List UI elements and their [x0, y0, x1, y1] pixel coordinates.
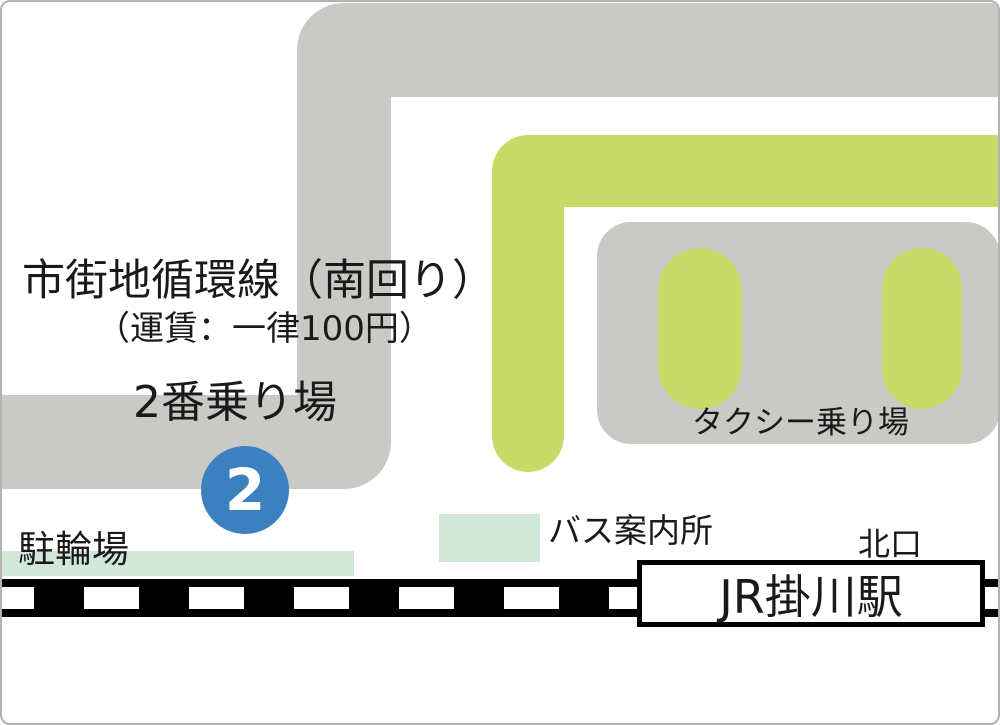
- bus-info-label: バス案内所: [548, 513, 713, 550]
- route-title: 市街地循環線（南回り）: [22, 257, 495, 305]
- route-fare: （運賃：一律100円）: [96, 310, 433, 348]
- stop-name-label: 2番乗り場: [133, 378, 337, 427]
- station-area-map: タクシー乗り場 駐輪場 バス案内所 北口 JR掛川駅 2 2番乗り場 市街地循環…: [0, 0, 1000, 725]
- taxi-stand-label: タクシー乗り場: [692, 406, 909, 441]
- bus-info-area: [439, 514, 540, 562]
- taxi-bay-left: [658, 248, 742, 409]
- taxi-bay-right: [882, 248, 962, 409]
- stop-badge-number: 2: [225, 456, 265, 524]
- railway-track-tie-end: [986, 587, 1000, 609]
- bicycle-parking-label: 駐輪場: [18, 529, 129, 570]
- north-exit-label: 北口: [858, 527, 922, 563]
- station-box: JR掛川駅: [637, 560, 985, 627]
- stop-number-badge: 2: [201, 446, 289, 534]
- station-label: JR掛川駅: [719, 561, 903, 627]
